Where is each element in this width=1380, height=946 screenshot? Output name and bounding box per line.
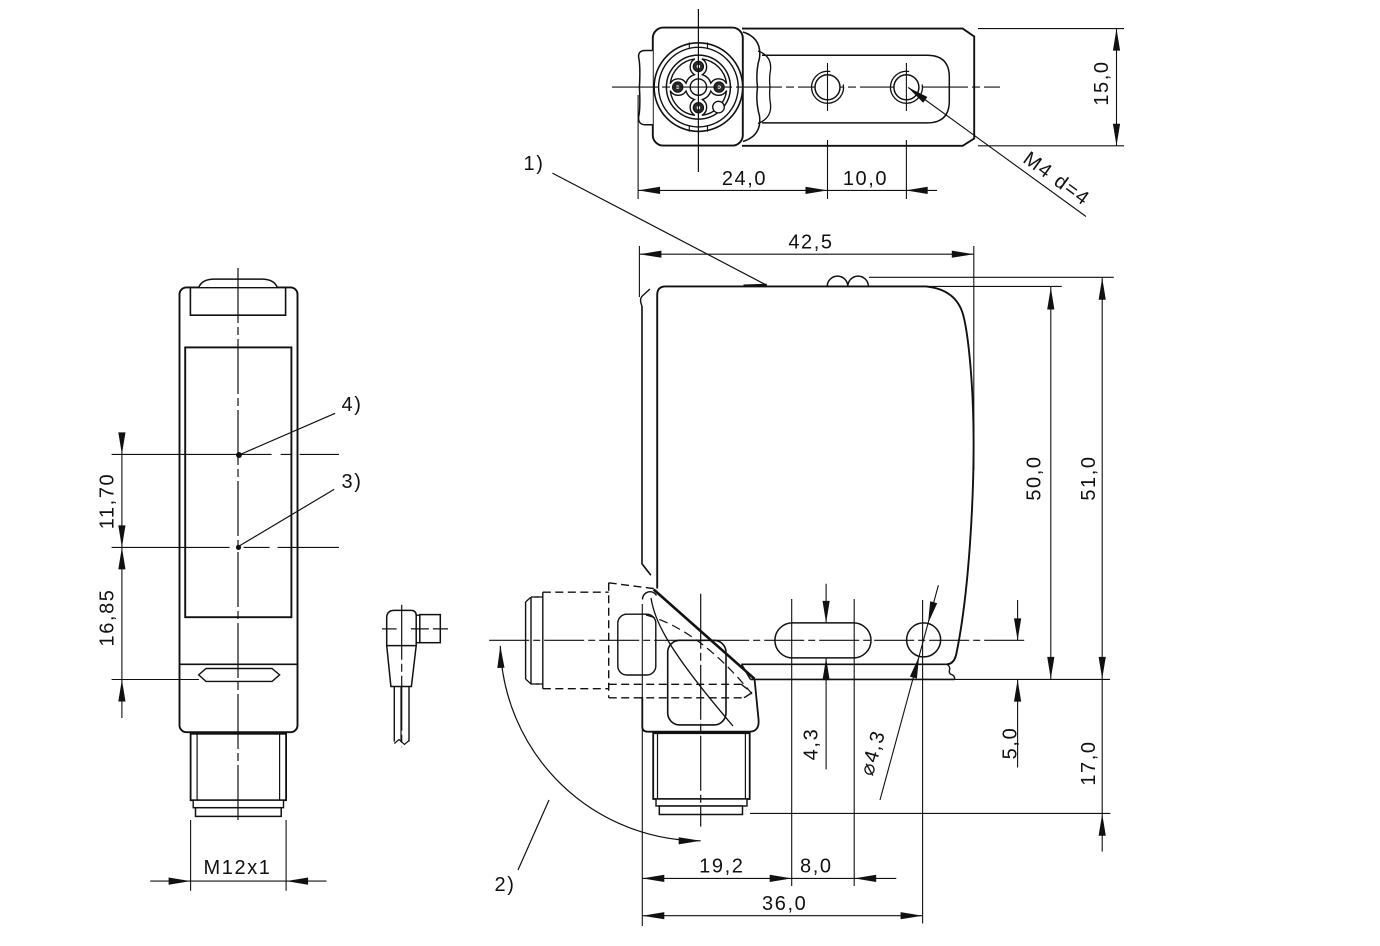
- svg-text:24,0: 24,0: [722, 168, 767, 190]
- svg-text:19,2: 19,2: [699, 856, 744, 878]
- svg-text:8,0: 8,0: [800, 856, 833, 878]
- svg-text:15,0: 15,0: [1091, 60, 1113, 105]
- svg-text:2): 2): [495, 874, 516, 896]
- svg-text:1): 1): [524, 153, 545, 175]
- svg-text:3): 3): [342, 471, 363, 493]
- svg-text:42,5: 42,5: [788, 232, 833, 254]
- svg-text:17,0: 17,0: [1078, 740, 1100, 785]
- svg-text:4): 4): [342, 394, 363, 416]
- svg-text:4,3: 4,3: [801, 728, 823, 761]
- svg-text:51,0: 51,0: [1078, 455, 1100, 500]
- svg-text:11,70: 11,70: [97, 473, 119, 530]
- svg-text:M12x1: M12x1: [203, 857, 271, 879]
- svg-text:16,85: 16,85: [97, 588, 119, 646]
- svg-text:36,0: 36,0: [762, 893, 807, 915]
- svg-text:50,0: 50,0: [1024, 455, 1046, 500]
- svg-text:5,0: 5,0: [1000, 727, 1022, 760]
- svg-text:10,0: 10,0: [843, 168, 888, 190]
